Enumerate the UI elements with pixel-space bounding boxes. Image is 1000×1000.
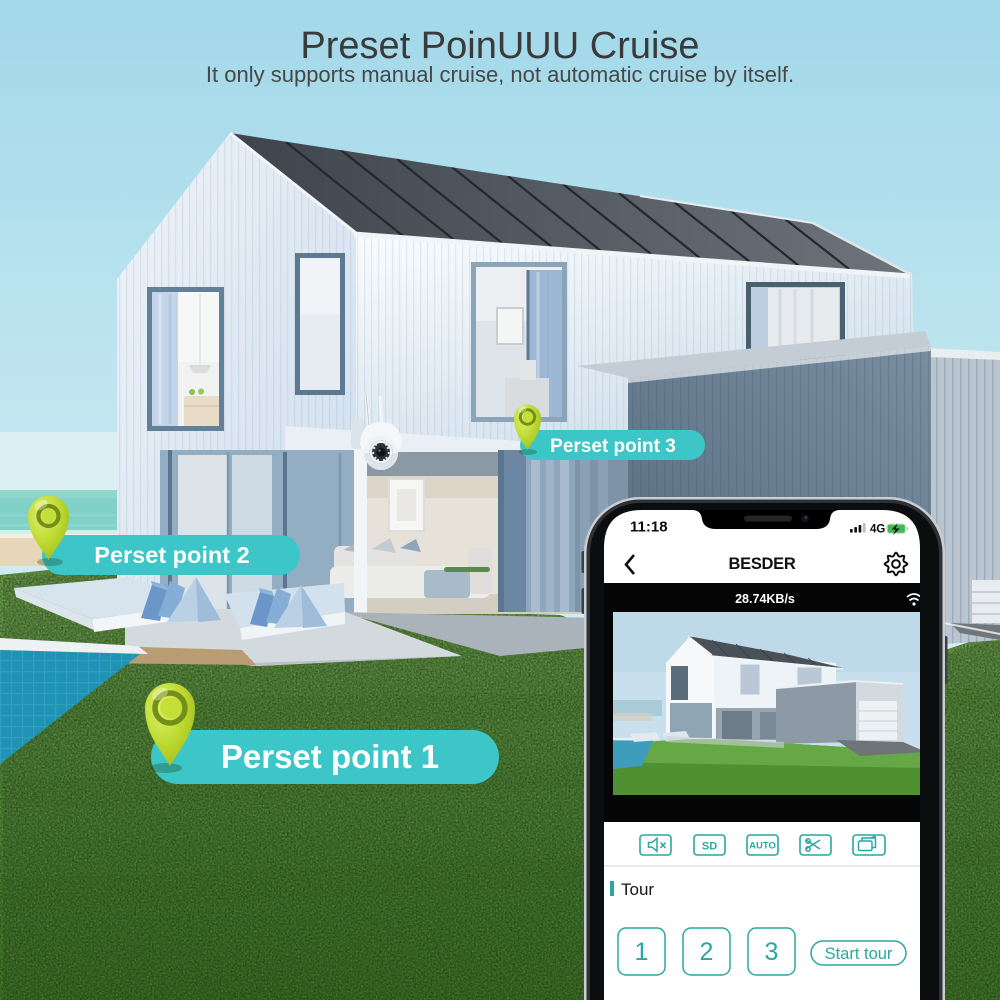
svg-text:Perset point 2: Perset point 2: [94, 542, 249, 568]
svg-text:Start tour: Start tour: [825, 945, 893, 963]
svg-text:1: 1: [635, 938, 649, 966]
svg-text:It only supports manual cruise: It only supports manual cruise, not auto…: [206, 62, 794, 87]
svg-text:2: 2: [700, 938, 714, 966]
svg-text:3: 3: [765, 938, 779, 966]
svg-text:AUTO: AUTO: [749, 841, 776, 852]
svg-text:Preset PoinUUU Cruise: Preset PoinUUU Cruise: [300, 25, 699, 67]
svg-text:BESDER: BESDER: [729, 555, 796, 573]
svg-text:4G: 4G: [870, 524, 885, 536]
svg-text:SD: SD: [702, 841, 717, 853]
svg-text:28.74KB/s: 28.74KB/s: [735, 592, 795, 606]
svg-text:Tour: Tour: [621, 880, 654, 899]
svg-text:Perset point 3: Perset point 3: [550, 436, 676, 457]
svg-text:11:18: 11:18: [630, 519, 668, 536]
svg-text:Perset point 1: Perset point 1: [221, 738, 439, 775]
